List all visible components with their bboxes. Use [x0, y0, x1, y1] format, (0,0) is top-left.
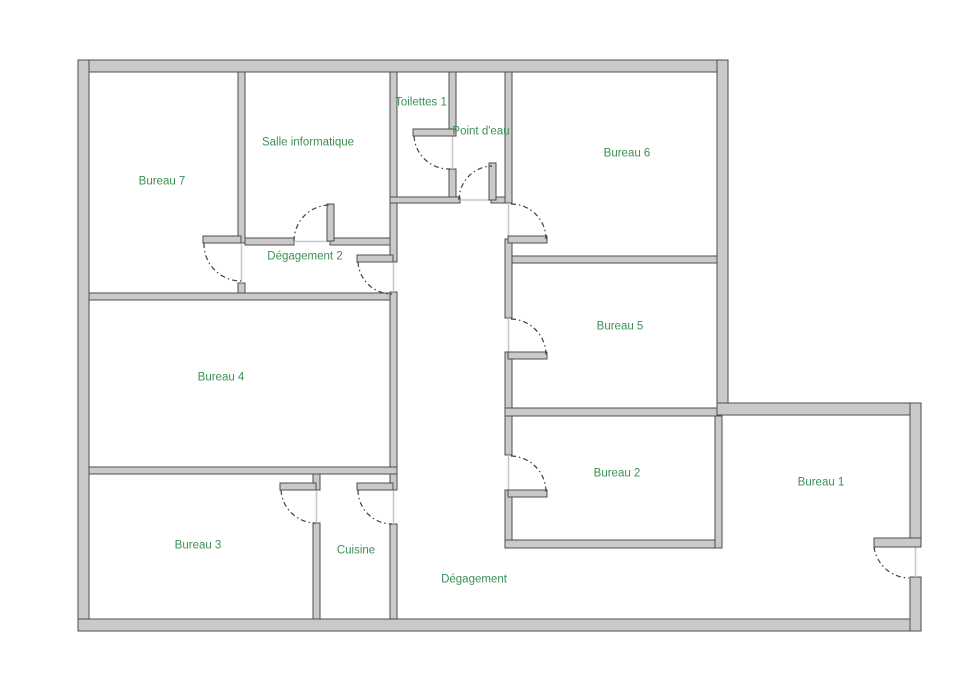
wall-corridor-east-c — [505, 352, 512, 455]
door-arc-degagement2 — [358, 262, 392, 294]
room-label-bureau-3: Bureau 3 — [175, 540, 222, 552]
wall-corridor-east-d — [505, 490, 512, 548]
door-leaf-pointdeau — [489, 163, 496, 200]
room-label-bureau-1: Bureau 1 — [798, 477, 845, 489]
door-leaf-bureau7 — [203, 236, 241, 243]
room-label-toilettes-1: Toilettes 1 — [395, 97, 447, 109]
door-leaf-bureau3 — [280, 483, 316, 490]
wall-exterior-right-lower-a — [910, 403, 921, 547]
room-label-cuisine: Cuisine — [337, 545, 375, 557]
door-arc-bureau5 — [511, 319, 546, 355]
floorplan: Bureau 7 Salle informatique Toilettes 1 … — [0, 0, 960, 680]
wall-salleinf-bottom-a — [245, 238, 294, 245]
door-leaf-degagement2 — [357, 255, 393, 262]
door-arcs — [204, 136, 909, 578]
wall-bureau2-right — [715, 416, 722, 548]
door-leaf-bureau2 — [508, 490, 547, 497]
wall-exterior-left — [78, 60, 89, 631]
door-arc-toilettes — [414, 136, 450, 169]
door-arc-cuisine — [358, 490, 392, 524]
wall-cuisine-right-b — [390, 524, 397, 619]
wall-bureau4-bottom — [89, 467, 397, 474]
wall-bureau4-top — [89, 293, 397, 300]
door-arc-bureau7 — [204, 243, 241, 281]
door-thresholds — [242, 136, 916, 577]
wall-toilettes-right-a — [449, 72, 456, 133]
room-label-degagement-2: Dégagement 2 — [267, 251, 342, 263]
room-label-bureau-2: Bureau 2 — [594, 468, 641, 480]
wall-bureau5-bureau2-divider — [505, 408, 717, 416]
door-arc-bureau6 — [511, 204, 546, 239]
wall-corridor-east-b — [505, 239, 512, 318]
room-label-degagement: Dégagement — [441, 574, 507, 586]
room-label-bureau-6: Bureau 6 — [604, 148, 651, 160]
wall-bureau6-bureau5-divider — [512, 256, 717, 263]
wall-corridor-top-a — [390, 197, 460, 203]
wall-bureau4-right — [390, 292, 397, 474]
door-arc-salleinf — [294, 205, 330, 241]
wall-exterior-step-top — [717, 403, 921, 415]
wall-exterior-right-upper — [717, 60, 728, 415]
room-label-bureau-7: Bureau 7 — [139, 176, 186, 188]
room-label-point-deau: Point d'eau — [452, 126, 509, 138]
wall-exterior-top — [78, 60, 728, 72]
wall-salleinf-bottom-b — [330, 238, 397, 245]
room-label-bureau-4: Bureau 4 — [198, 372, 245, 384]
door-arc-entrance — [874, 547, 909, 578]
door-arc-pointdeau — [459, 166, 492, 200]
door-arc-bureau2 — [511, 456, 546, 492]
door-leaf-bureau6 — [508, 236, 547, 243]
wall-bureau2-bottom — [505, 540, 722, 548]
door-leaf-bureau5 — [508, 352, 547, 359]
door-leaf-toilettes — [413, 129, 456, 136]
room-label-salle-informatique: Salle informatique — [262, 137, 354, 149]
door-arc-bureau3 — [281, 490, 316, 523]
door-leaf-entrance — [874, 538, 921, 547]
door-leaf-cuisine — [357, 483, 393, 490]
wall-exterior-bottom — [78, 619, 921, 631]
room-label-bureau-5: Bureau 5 — [597, 321, 644, 333]
wall-bureau7-right-a — [238, 72, 245, 243]
wall-exterior-right-lower-b — [910, 577, 921, 631]
door-leaf-salleinf — [327, 204, 334, 241]
wall-bureau3-cuisine-b — [313, 523, 320, 619]
